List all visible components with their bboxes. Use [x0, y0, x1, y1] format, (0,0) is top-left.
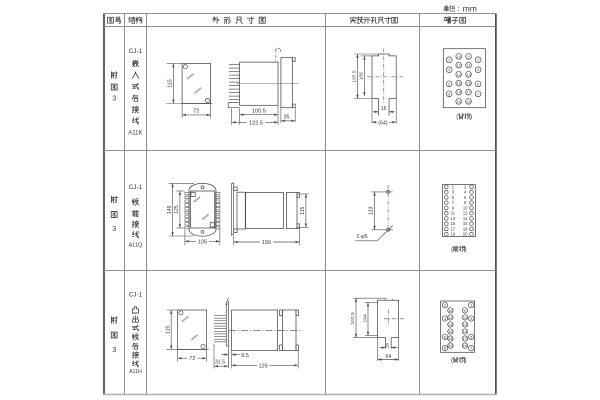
svg-text:3: 3: [112, 224, 116, 233]
svg-text:A11H: A11H: [129, 369, 142, 375]
svg-text:13: 13: [451, 216, 456, 221]
svg-text:133: 133: [369, 206, 375, 215]
svg-text:9: 9: [464, 308, 467, 313]
svg-text:20: 20: [463, 232, 468, 237]
svg-text:CJ-1: CJ-1: [129, 48, 143, 55]
svg-text:CJ-1: CJ-1: [129, 184, 143, 191]
svg-text:125: 125: [174, 205, 180, 214]
svg-text:105: 105: [198, 239, 207, 245]
svg-text:122.5: 122.5: [249, 120, 263, 126]
svg-text:15: 15: [463, 329, 468, 334]
svg-text:16: 16: [385, 343, 390, 349]
svg-text:105: 105: [359, 72, 365, 80]
svg-text:8: 8: [444, 346, 447, 351]
svg-text:17: 17: [463, 336, 468, 341]
svg-text:16: 16: [381, 106, 387, 112]
svg-text:CJ-1: CJ-1: [129, 292, 143, 299]
svg-text:149: 149: [167, 205, 173, 214]
svg-text:7: 7: [470, 346, 473, 351]
svg-text:6: 6: [444, 334, 447, 339]
svg-text:156: 156: [262, 240, 271, 246]
svg-text:3: 3: [470, 316, 473, 321]
svg-text:16: 16: [457, 81, 461, 86]
svg-text::: :: [458, 6, 460, 13]
svg-text:A11Q: A11Q: [128, 242, 143, 248]
svg-text:12: 12: [457, 63, 461, 68]
svg-text:19: 19: [451, 232, 456, 237]
svg-text:19: 19: [466, 99, 470, 104]
svg-text:): ): [470, 114, 472, 121]
svg-text:mm: mm: [463, 3, 477, 13]
svg-text:19: 19: [463, 343, 468, 348]
svg-text:9: 9: [452, 205, 455, 210]
svg-text:1: 1: [470, 303, 473, 308]
svg-text:107.5: 107.5: [352, 70, 358, 83]
svg-text:13: 13: [466, 72, 470, 77]
svg-text:3: 3: [112, 93, 116, 102]
svg-text:2-φ5: 2-φ5: [356, 234, 367, 240]
svg-text:2: 2: [464, 184, 467, 189]
svg-text:6: 6: [464, 195, 467, 200]
svg-text:A11K: A11K: [128, 131, 142, 137]
svg-text:17: 17: [466, 90, 470, 95]
svg-text:2: 2: [448, 57, 450, 62]
svg-text:35: 35: [284, 115, 290, 121]
svg-text:4: 4: [444, 316, 447, 321]
svg-text:15: 15: [466, 81, 470, 86]
svg-text:64: 64: [386, 354, 392, 360]
svg-text:3: 3: [112, 345, 116, 354]
svg-text:6: 6: [448, 81, 450, 86]
svg-text:5: 5: [477, 81, 479, 86]
svg-text:(64): (64): [378, 120, 387, 126]
svg-text:31.5: 31.5: [215, 359, 225, 365]
svg-text:115: 115: [300, 207, 306, 215]
svg-text:8: 8: [448, 91, 450, 96]
svg-text:9: 9: [467, 54, 469, 59]
svg-text:4: 4: [448, 67, 451, 72]
svg-text:10: 10: [448, 308, 453, 313]
svg-text:): ): [464, 357, 466, 364]
svg-text:107.5: 107.5: [350, 312, 356, 325]
svg-text:1: 1: [477, 57, 479, 62]
svg-text:72: 72: [189, 356, 195, 362]
svg-text:3: 3: [477, 67, 479, 72]
svg-text:100.5: 100.5: [252, 108, 266, 114]
svg-text:10: 10: [463, 205, 468, 210]
svg-text:115: 115: [168, 79, 174, 88]
svg-text:126: 126: [259, 363, 268, 369]
svg-text:2: 2: [444, 303, 447, 308]
svg-text:16: 16: [448, 329, 453, 334]
svg-text:14: 14: [448, 322, 453, 327]
svg-text:20: 20: [448, 343, 453, 348]
svg-text:18: 18: [463, 226, 468, 231]
svg-text:5: 5: [470, 334, 473, 339]
svg-text:5: 5: [452, 195, 455, 200]
svg-text:72: 72: [193, 108, 199, 114]
svg-text:17: 17: [451, 226, 456, 231]
svg-text:18: 18: [457, 90, 461, 95]
svg-text:18: 18: [448, 336, 453, 341]
svg-text:13: 13: [463, 322, 468, 327]
svg-text:7: 7: [477, 91, 479, 96]
svg-text:104: 104: [362, 314, 368, 322]
svg-text:11: 11: [466, 63, 470, 68]
svg-text:14: 14: [463, 216, 468, 221]
svg-text:): ): [465, 246, 467, 253]
svg-text:9.5: 9.5: [241, 353, 249, 359]
svg-text:12: 12: [448, 315, 453, 320]
svg-text:1: 1: [452, 184, 455, 189]
svg-text:115: 115: [165, 326, 171, 334]
